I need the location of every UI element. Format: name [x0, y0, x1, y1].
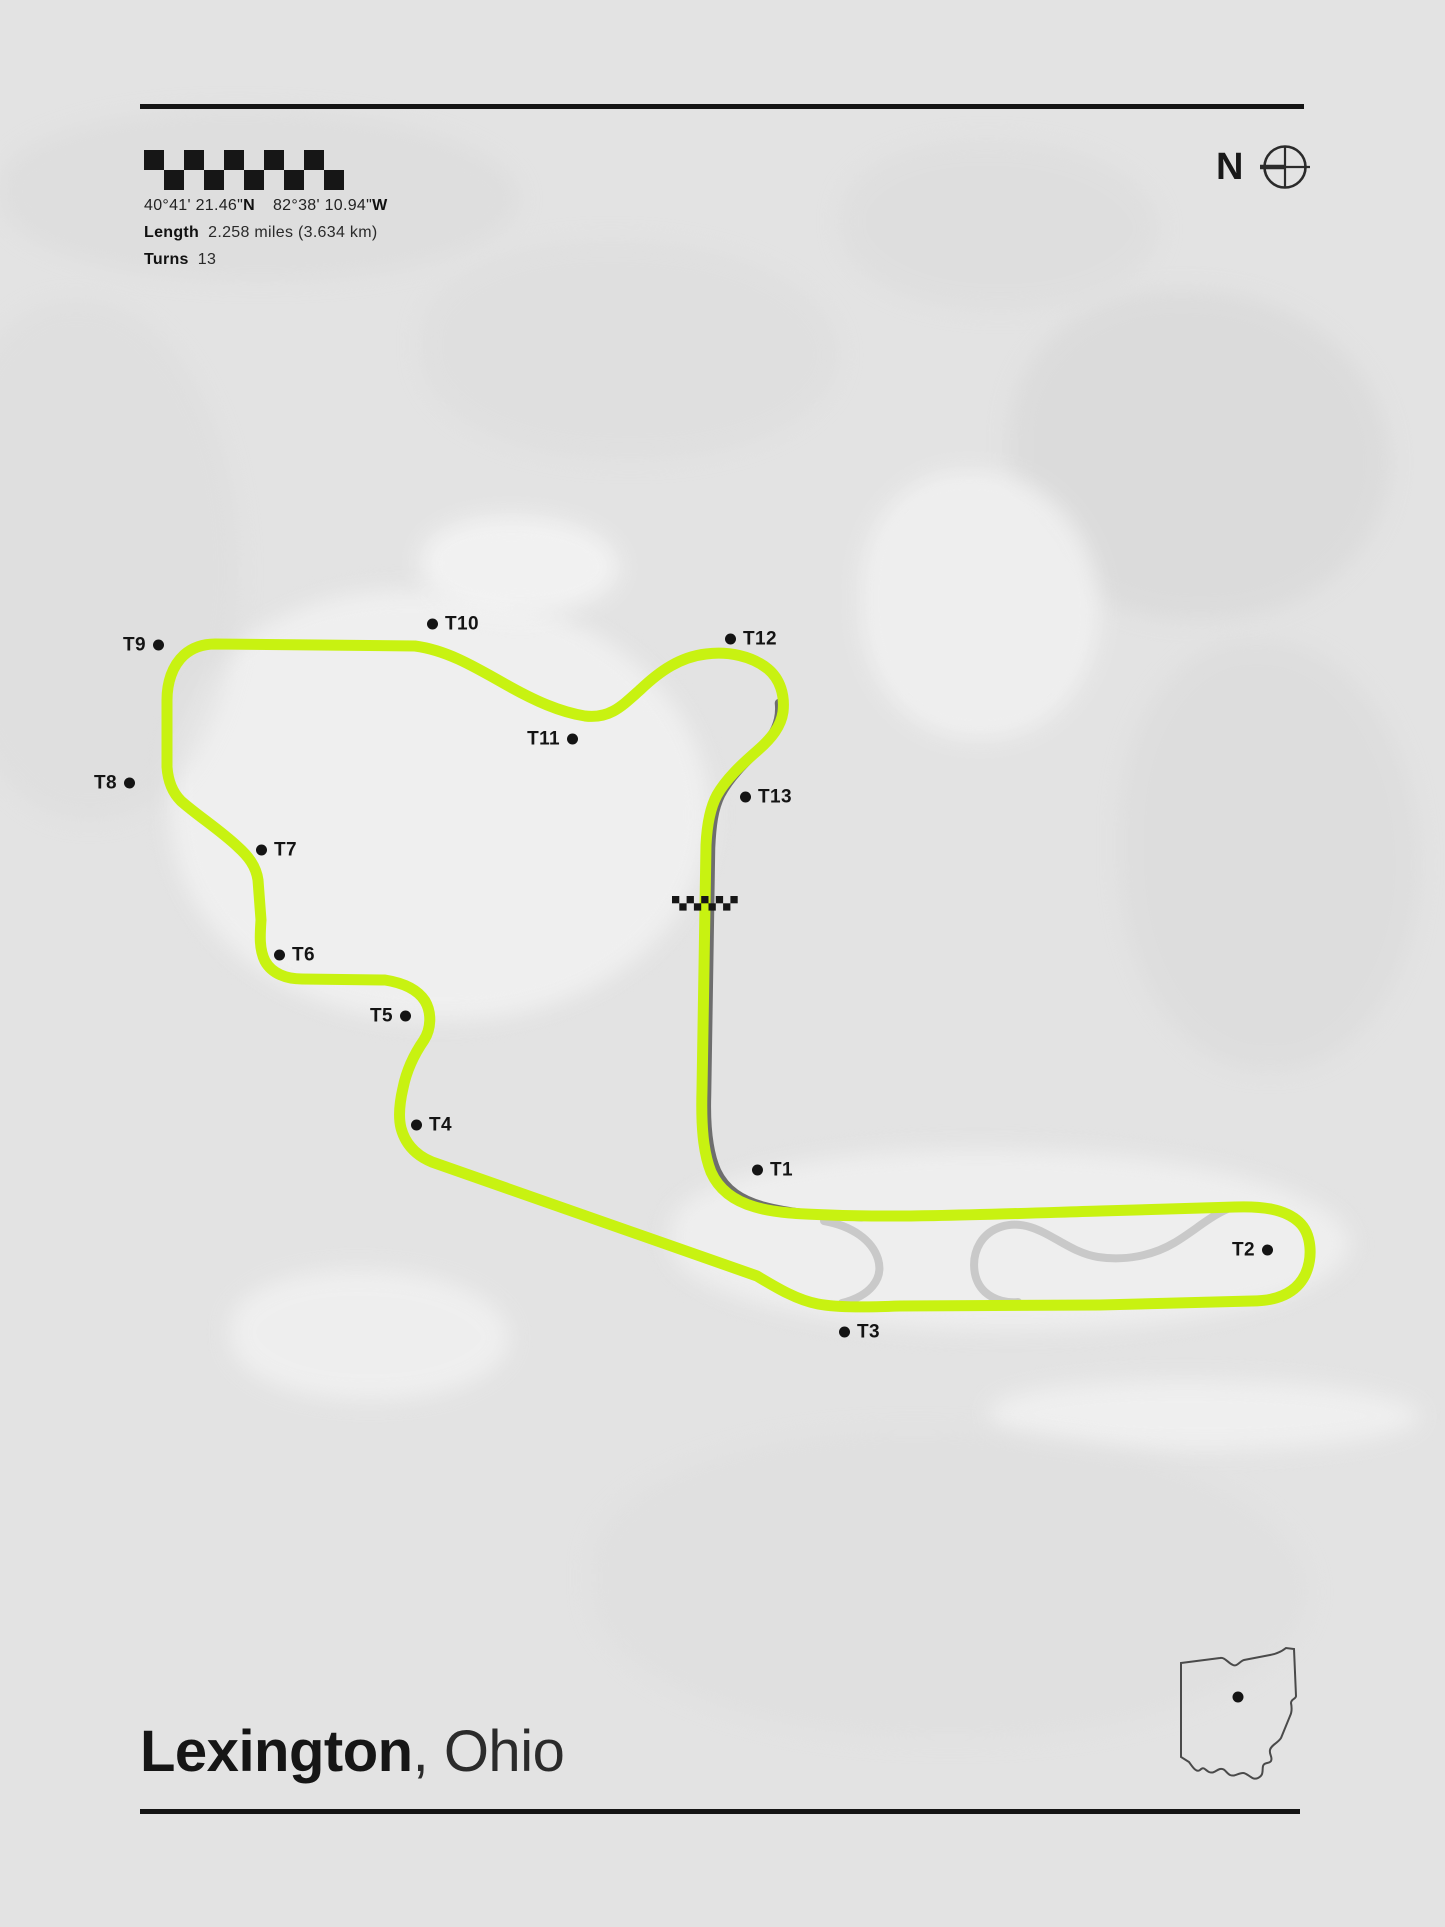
turn-label: T13: [758, 788, 792, 807]
turn-dot: [839, 1327, 850, 1338]
turn-label: T9: [123, 636, 146, 655]
turn-marker-t4: T4: [411, 1116, 452, 1135]
turn-marker-t7: T7: [256, 841, 297, 860]
turn-marker-t8: T8: [94, 774, 135, 793]
ohio-state-outline-icon: [1178, 1644, 1302, 1786]
turn-label: T11: [527, 730, 560, 749]
turn-label: T7: [274, 841, 297, 860]
turn-marker-t10: T10: [427, 615, 479, 634]
turn-label: T6: [292, 946, 315, 965]
turn-marker-t5: T5: [370, 1007, 411, 1026]
turn-marker-t9: T9: [123, 636, 164, 655]
turn-dot: [752, 1165, 763, 1176]
turn-label: T5: [370, 1007, 393, 1026]
turn-marker-t1: T1: [752, 1161, 793, 1180]
turn-marker-t3: T3: [839, 1323, 880, 1342]
turn-dot: [567, 734, 578, 745]
turn-dot: [400, 1011, 411, 1022]
turn-dot: [411, 1120, 422, 1131]
city-name: Lexington: [140, 1719, 413, 1784]
turn-dot: [124, 778, 135, 789]
track-outline-main: [167, 644, 1310, 1307]
turn-label: T2: [1232, 1241, 1255, 1260]
turn-dot: [427, 619, 438, 630]
turn-dot: [1262, 1245, 1273, 1256]
turn-marker-t2: T2: [1232, 1241, 1273, 1260]
turn-dot: [725, 634, 736, 645]
turn-label: T10: [445, 615, 479, 634]
turn-label: T4: [429, 1116, 452, 1135]
turn-marker-t6: T6: [274, 946, 315, 965]
turn-label: T3: [857, 1323, 880, 1342]
track-alt-loop-west: [824, 1221, 879, 1303]
track-alt-loop-east: [974, 1207, 1233, 1302]
turn-label: T1: [770, 1161, 793, 1180]
turn-label: T12: [743, 630, 777, 649]
turn-dot: [153, 640, 164, 651]
circuit-map: [0, 0, 1445, 1927]
region-name: , Ohio: [413, 1719, 565, 1784]
turn-dot: [740, 792, 751, 803]
turn-marker-t11: T11: [527, 730, 578, 749]
turn-marker-t12: T12: [725, 630, 777, 649]
page-title: Lexington, Ohio: [140, 1718, 564, 1785]
turn-dot: [274, 950, 285, 961]
turn-marker-t13: T13: [740, 788, 792, 807]
track-poster: 40°41' 21.46"N82°38' 10.94"W Length2.258…: [0, 0, 1445, 1927]
turn-label: T8: [94, 774, 117, 793]
turn-dot: [256, 845, 267, 856]
